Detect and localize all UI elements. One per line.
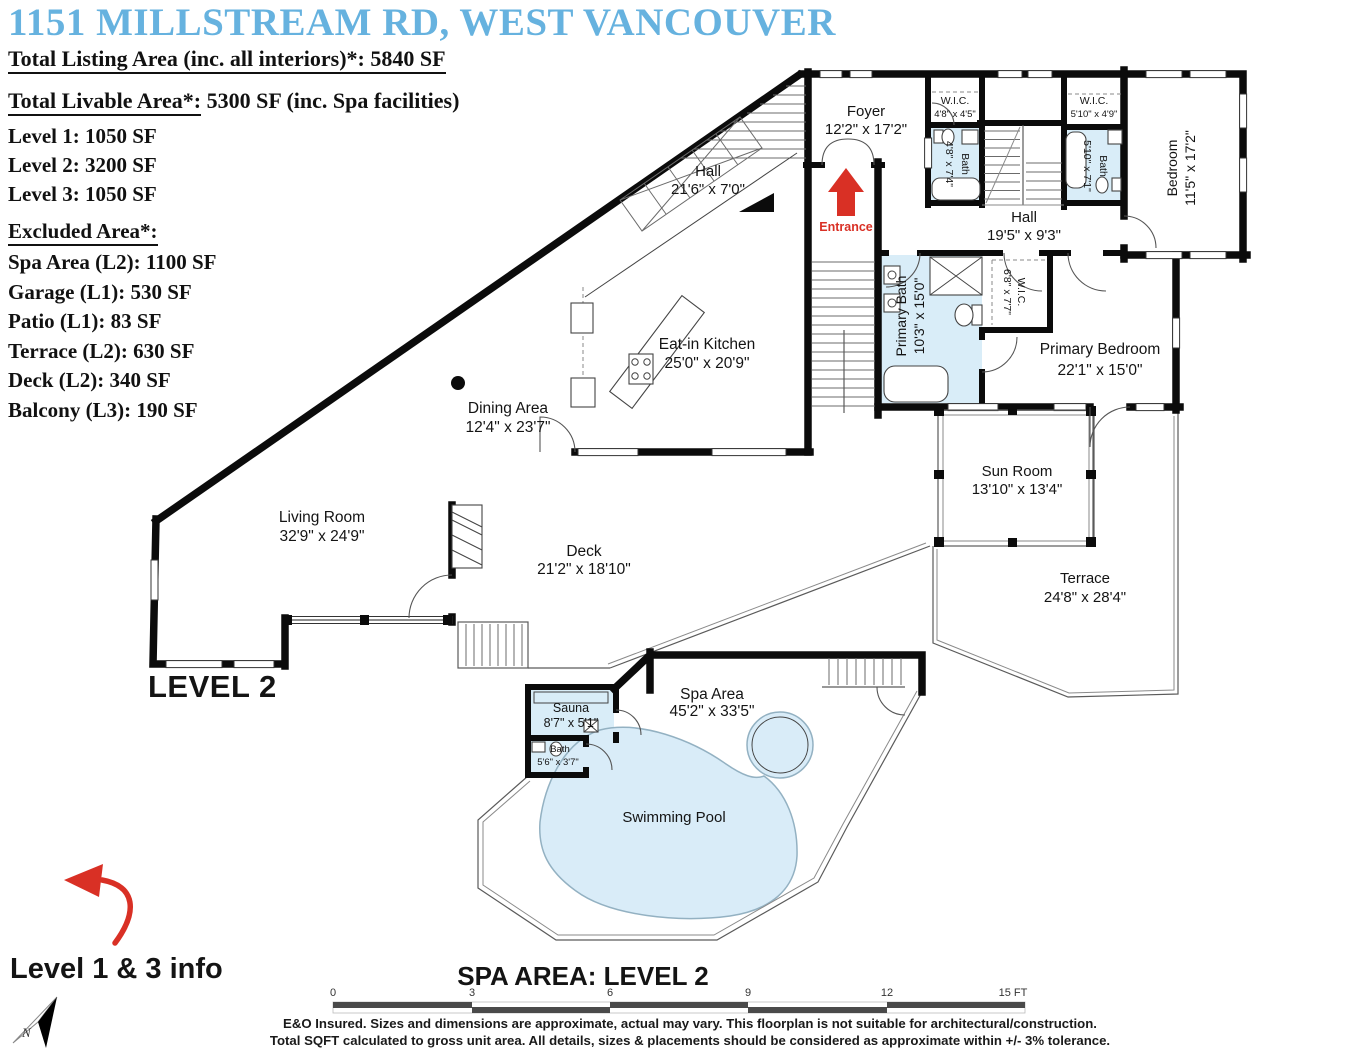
- spa-stairs: [822, 658, 905, 687]
- wic-right-label: W.I.C.: [1080, 95, 1109, 107]
- bedroom-label: Bedroom: [1164, 140, 1180, 197]
- disclaimer-line2: Total SQFT calculated to gross unit area…: [270, 1033, 1110, 1048]
- stairwell-center: [982, 125, 1064, 205]
- living-deck-door: [409, 575, 452, 618]
- bath-left-dims: 4'8" x 7'4": [943, 141, 955, 187]
- sun-room-label: Sun Room: [982, 463, 1053, 480]
- sink: [532, 742, 545, 752]
- wic-left-dims: 4'8" x 4'5": [934, 109, 976, 120]
- terrace-dims: 24'8" x 28'4": [1044, 589, 1126, 606]
- foyer-label: Foyer: [847, 103, 885, 120]
- dining-label: Dining Area: [468, 400, 549, 417]
- primary-bedroom-label: Primary Bedroom: [1040, 341, 1161, 358]
- toilet: [955, 304, 973, 326]
- wic-left-label: W.I.C.: [941, 95, 970, 107]
- wic-primary-label: W.I.C.: [1015, 278, 1027, 307]
- entrance-label: Entrance: [819, 220, 873, 234]
- level13-arrow-icon: [64, 864, 130, 943]
- bedroom-dims: 11'5" x 17'2": [1182, 130, 1198, 206]
- spa-entry-door: [877, 687, 905, 715]
- doors: [409, 103, 1156, 770]
- entrance-arrow-icon: [828, 168, 864, 216]
- deck-dims: 21'2" x 18'10": [537, 561, 631, 578]
- deck-label: Deck: [566, 543, 602, 560]
- living-dims: 32'9" x 24'9": [279, 528, 364, 545]
- primary-bedroom-dims: 22'1" x 15'0": [1057, 362, 1142, 379]
- hall-upper-dims: 21'6" x 7'0": [671, 181, 745, 198]
- spa-level-caption: SPA AREA: LEVEL 2: [457, 961, 708, 991]
- bath-right-dims: 5'10" x 7'1": [1081, 140, 1093, 192]
- sauna-label: Sauna: [553, 701, 589, 715]
- sun-room-dims: 13'10" x 13'4": [972, 481, 1063, 498]
- foyer-double-door: [822, 139, 874, 165]
- foyer-dims: 12'2" x 17'2": [825, 121, 907, 138]
- bedroom-door: [1124, 216, 1156, 248]
- hall-lower-dims: 19'5" x 9'3": [987, 227, 1061, 244]
- stove-icon: [629, 354, 653, 384]
- bath-left-label: Bath: [959, 153, 971, 175]
- entrance-stairs: [812, 262, 875, 413]
- column: [451, 376, 465, 390]
- bath-bedroom-door: [982, 337, 1017, 372]
- hall-lower-label: Hall: [1011, 209, 1037, 226]
- level13-caption: Level 1 & 3 info: [10, 953, 223, 985]
- level-2-caption: LEVEL 2: [148, 669, 277, 704]
- hall-diagonal-stairs: [620, 117, 762, 231]
- north-label: N: [21, 1025, 32, 1040]
- scale-tick-15: 15 FT: [999, 987, 1028, 999]
- hall-upper-label: Hall: [695, 163, 721, 180]
- spa-walls: [614, 652, 922, 692]
- terrace-outline: [933, 413, 1178, 697]
- spa-bath-dims: 5'6" x 3'7": [537, 757, 579, 768]
- bathtub: [932, 178, 980, 200]
- deck-railing-inner: [608, 543, 926, 664]
- living-west-south-walls: [153, 519, 285, 666]
- deck-stairs: [458, 622, 528, 668]
- scale-tick-6: 6: [607, 987, 613, 999]
- toilet: [1096, 177, 1108, 193]
- spa-bath-label: Bath: [550, 744, 570, 755]
- terrace-label: Terrace: [1060, 570, 1110, 587]
- spa-area-label: Spa Area: [680, 686, 744, 703]
- floorplan-drawing: Entrance Foyer 12'2" x 17'2" Hall 21'6" …: [0, 0, 1360, 1051]
- wic-primary-dims: 6'8" x 7'7": [1001, 269, 1013, 315]
- kitchen-dims: 25'0" x 20'9": [664, 355, 749, 372]
- primary-bath-dims: 10'3" x 15'0": [911, 278, 927, 355]
- fireplace: [452, 505, 482, 568]
- disclaimer-line1: E&O Insured. Sizes and dimensions are ap…: [283, 1016, 1097, 1031]
- spa-area-dims: 45'2" x 33'5": [669, 703, 754, 720]
- sauna-dims: 8'7" x 5'1": [544, 716, 599, 730]
- bathtub: [884, 366, 948, 402]
- dining-dims: 12'4" x 23'7": [465, 419, 550, 436]
- floorplan-page: 1151 MILLSTREAM RD, WEST VANCOUVER Total…: [0, 0, 1360, 1051]
- entrance-marker: Entrance: [819, 168, 873, 234]
- scale-tick-0: 0: [330, 987, 336, 999]
- scale-tick-12: 12: [881, 987, 893, 999]
- scale-tick-9: 9: [745, 987, 751, 999]
- primary-bedroom-door: [1068, 253, 1106, 291]
- sink: [962, 130, 978, 144]
- hot-tub: [747, 712, 813, 778]
- pool-label: Swimming Pool: [622, 809, 725, 826]
- bath-right-label: Bath: [1097, 155, 1109, 177]
- wic-right-dims: 5'10" x 4'9": [1071, 109, 1118, 120]
- scale-tick-3: 3: [469, 987, 475, 999]
- kitchen-label: Eat-in Kitchen: [659, 336, 756, 353]
- north-compass-icon: N: [13, 997, 57, 1048]
- living-label: Living Room: [279, 509, 365, 526]
- terrace-outline-inner: [937, 416, 1174, 693]
- deck-railing: [610, 546, 930, 668]
- primary-bath-label: Primary Bath: [893, 276, 909, 357]
- sink: [1108, 130, 1122, 144]
